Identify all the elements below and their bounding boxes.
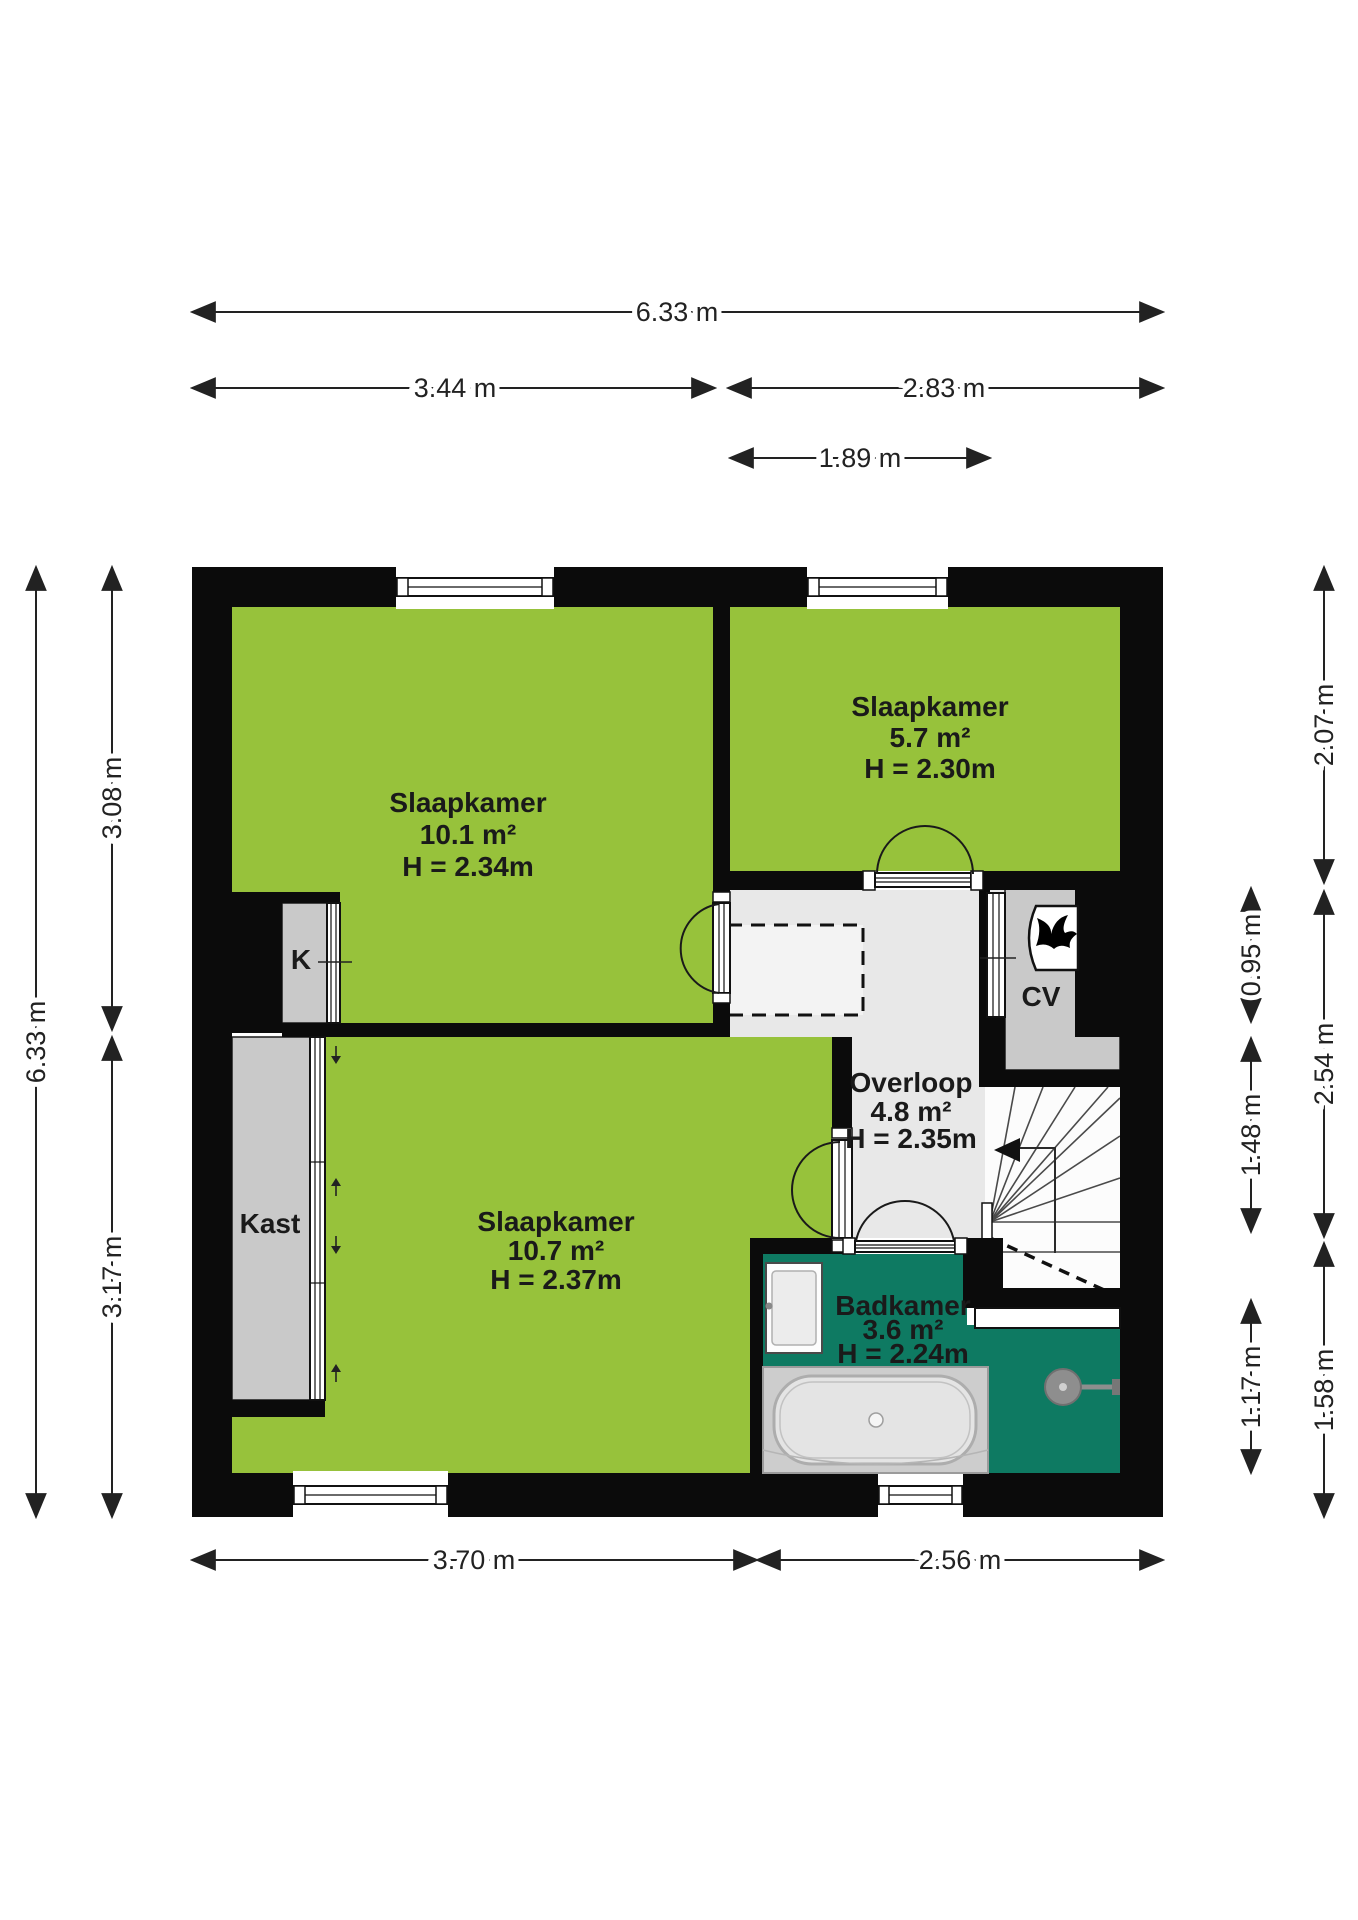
shower-partition [975,1308,1120,1328]
dimension-top-left: 3.44 m [192,373,715,403]
cv-closet-wall-bottom [979,1070,1120,1087]
dimension-right-stairs: 1.48 m [1236,1038,1266,1232]
dimension-right-upper-outer: 2.07 m [1309,567,1339,883]
dimension-bottom-right: 2.56 m [757,1545,1163,1575]
wall-bedroom1-divider [713,607,730,892]
room-height: H = 2.30m [864,753,996,784]
svg-text:2.56 m: 2.56 m [919,1545,1002,1575]
room-height: H = 2.35m [845,1123,977,1154]
room-area: 10.1 m² [420,819,517,850]
svg-text:3.17 m: 3.17 m [97,1236,127,1319]
dimension-bottom-left: 3.70 m [192,1545,757,1575]
outer-wall-right [1120,567,1163,1517]
dimension-right-middle-outer: 2.54 m [1309,891,1339,1237]
room-area: 10.7 m² [508,1235,605,1266]
outer-wall-top [192,567,1163,607]
svg-text:2.07 m: 2.07 m [1309,684,1339,767]
room-area: 5.7 m² [890,722,971,753]
dimension-left-total: 6.33 m [21,567,51,1517]
svg-text:2.83 m: 2.83 m [903,373,986,403]
wall-bathroom-left [750,1253,763,1473]
room-name: Slaapkamer [389,787,546,818]
kast-wall-bottom [232,1400,325,1417]
svg-text:1.17 m: 1.17 m [1236,1346,1266,1429]
svg-text:3.44 m: 3.44 m [414,373,497,403]
svg-text:6.33 m: 6.33 m [636,297,719,327]
dimension-left-lower: 3.17 m [97,1037,127,1517]
dimension-right-lower-outer: 1.58 m [1309,1243,1339,1517]
svg-text:6.33 m: 6.33 m [21,1001,51,1084]
loft-hatch-outline [728,925,863,1015]
window-bottom-right [878,1471,963,1517]
room-height: H = 2.24m [837,1338,969,1369]
room-name: Overloop [850,1067,973,1098]
stairs-entry-post [982,1203,992,1240]
room-name: Slaapkamer [477,1206,634,1237]
k-closet-wall-block [228,903,282,1033]
svg-text:2.54 m: 2.54 m [1309,1023,1339,1106]
svg-text:3.70 m: 3.70 m [433,1545,516,1575]
kast-label: Kast [240,1208,301,1239]
wall-bedroom2-landing-left [728,871,863,890]
outer-wall-left [192,567,232,1517]
window-top-left [396,565,554,609]
wall-stairs-bathroom [1001,1288,1120,1308]
k-label: K [291,944,311,975]
bathtub [763,1367,988,1473]
svg-text:1.58 m: 1.58 m [1309,1349,1339,1432]
dimension-top-inner: 1.89 m [730,443,990,473]
room-height: H = 2.37m [490,1264,622,1295]
dimension-top-total: 6.33 m [192,297,1163,327]
dimension-left-upper: 3.08 m [97,567,127,1030]
wall-bedroom2-landing-right [980,871,1120,890]
svg-text:3.08 m: 3.08 m [97,757,127,840]
sink [766,1263,823,1353]
window-bottom-left [293,1471,448,1517]
wall-bedroom1-bedroom3 [282,1023,728,1037]
dimension-right-cv: 0.95 m [1236,888,1266,1022]
sink-tap [766,1303,773,1310]
cv-boiler [1029,906,1078,970]
chimney-block [1075,890,1120,1037]
room-badkamer-shower-zone [967,1325,1120,1473]
k-closet-wall-top [228,892,340,903]
dimension-top-right: 2.83 m [728,373,1163,403]
window-top-right [807,565,948,609]
svg-text:1.89 m: 1.89 m [819,443,902,473]
svg-text:0.95 m: 0.95 m [1236,914,1266,997]
room-height: H = 2.34m [402,851,534,882]
room-name: Slaapkamer [851,691,1008,722]
cv-closet-wall-below-door [987,1017,1005,1070]
k-closet-door-strip [327,903,340,1023]
bathtub-drain [869,1413,883,1427]
svg-text:1.48 m: 1.48 m [1236,1094,1266,1177]
dimension-right-shower: 1.17 m [1236,1300,1266,1473]
cv-label: CV [1022,981,1061,1012]
floor-plan-canvas: Slaapkamer 10.1 m² H = 2.34m Slaapkamer … [0,0,1358,1920]
